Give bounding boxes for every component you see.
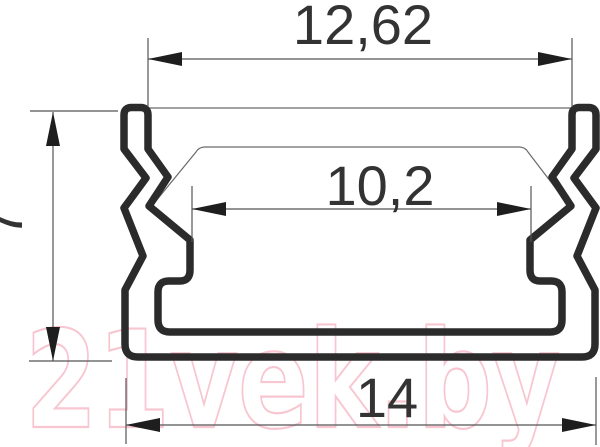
arrow-right-icon <box>538 52 572 66</box>
dimension-label-inner-width: 10,2 <box>326 154 435 217</box>
dimension-label-bottom-width: 14 <box>356 366 418 429</box>
arrow-left-icon <box>148 52 182 66</box>
dimension-inner-width: 10,2 <box>192 154 531 242</box>
dimension-top-width: 12,62 <box>148 0 572 107</box>
profile-drawing: 21vek.by 12,62 10,2 <box>0 0 600 447</box>
dimension-label-height: 7 <box>0 206 35 238</box>
dimension-label-top-width: 12,62 <box>293 0 433 56</box>
arrow-right-icon <box>562 418 596 432</box>
arrow-right-icon <box>497 202 531 216</box>
arrow-up-icon <box>46 112 60 146</box>
arrow-left-icon <box>192 202 226 216</box>
technical-drawing-canvas: 21vek.by 12,62 10,2 <box>0 0 600 447</box>
